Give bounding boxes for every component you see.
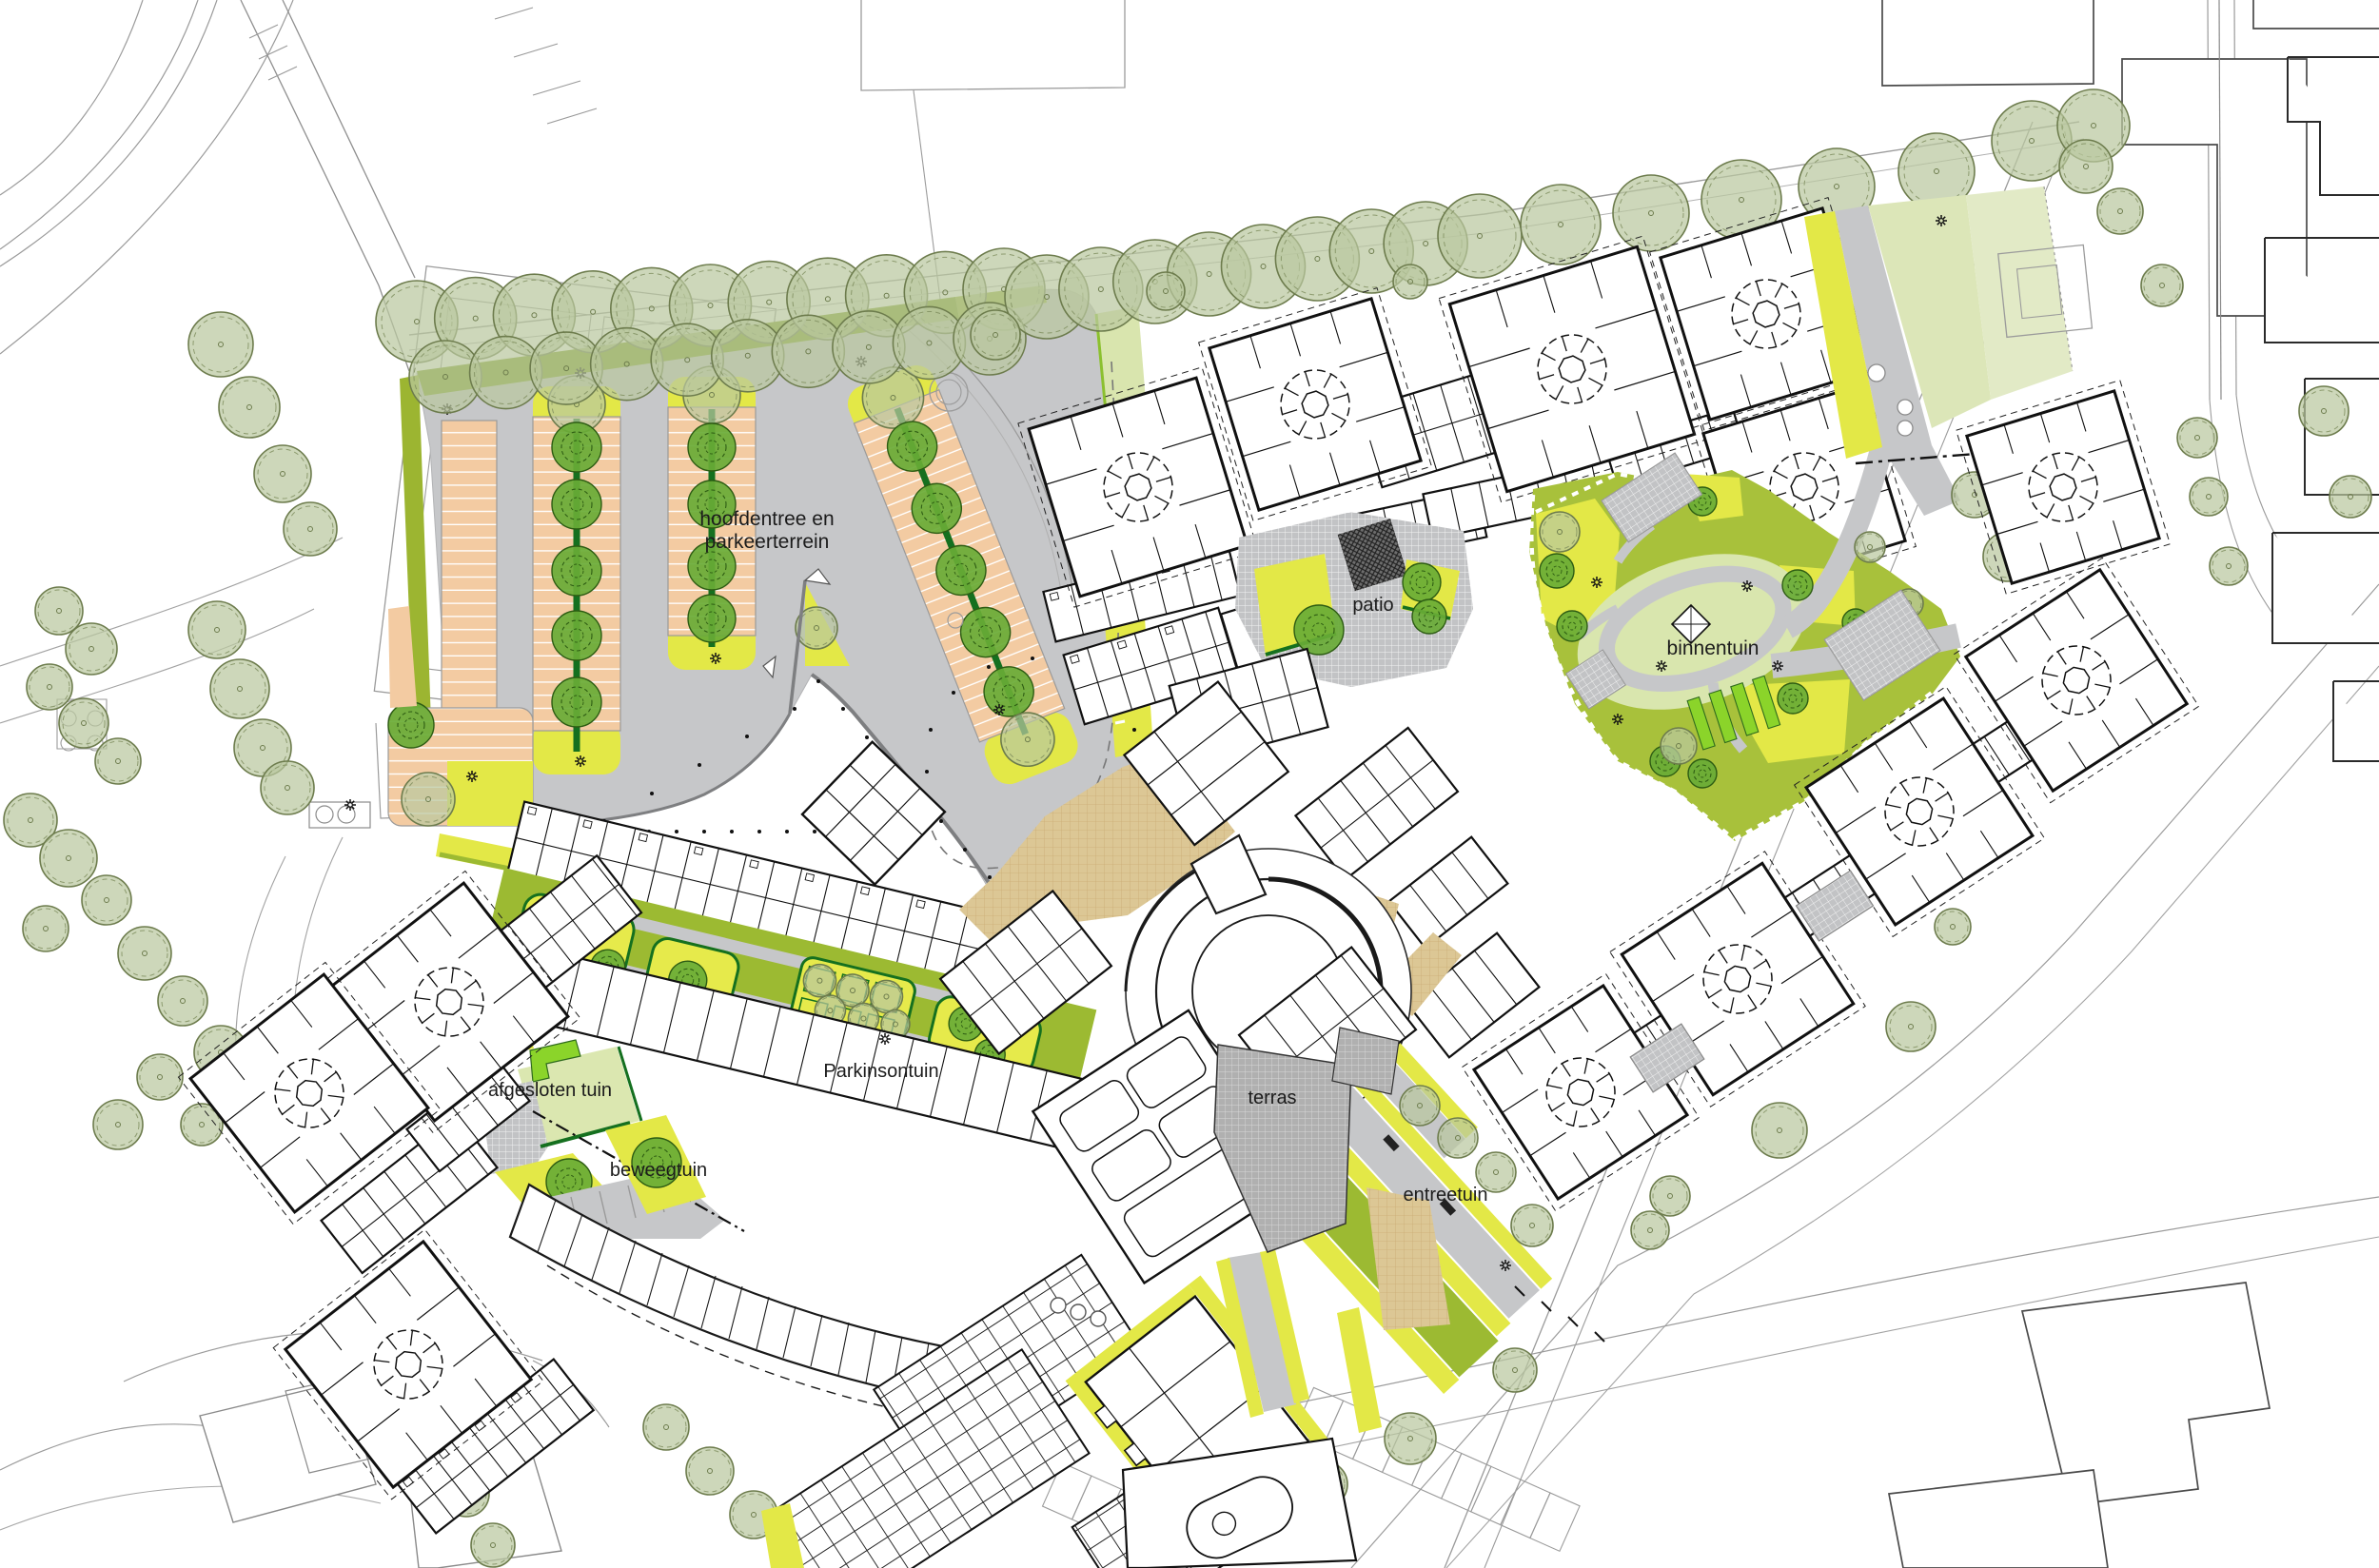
- svg-text:afgesloten tuin: afgesloten tuin: [488, 1080, 612, 1101]
- svg-text:terras: terras: [1248, 1088, 1296, 1108]
- svg-text:parkeerterrein: parkeerterrein: [705, 531, 830, 553]
- svg-text:hoofdentree en: hoofdentree en: [699, 508, 834, 530]
- svg-text:entreetuin: entreetuin: [1404, 1185, 1488, 1205]
- svg-text:beweegtuin: beweegtuin: [610, 1160, 707, 1181]
- svg-text:patio: patio: [1352, 595, 1393, 616]
- svg-text:binnentuin: binnentuin: [1667, 637, 1760, 659]
- svg-text:Parkinsontuin: Parkinsontuin: [823, 1061, 938, 1082]
